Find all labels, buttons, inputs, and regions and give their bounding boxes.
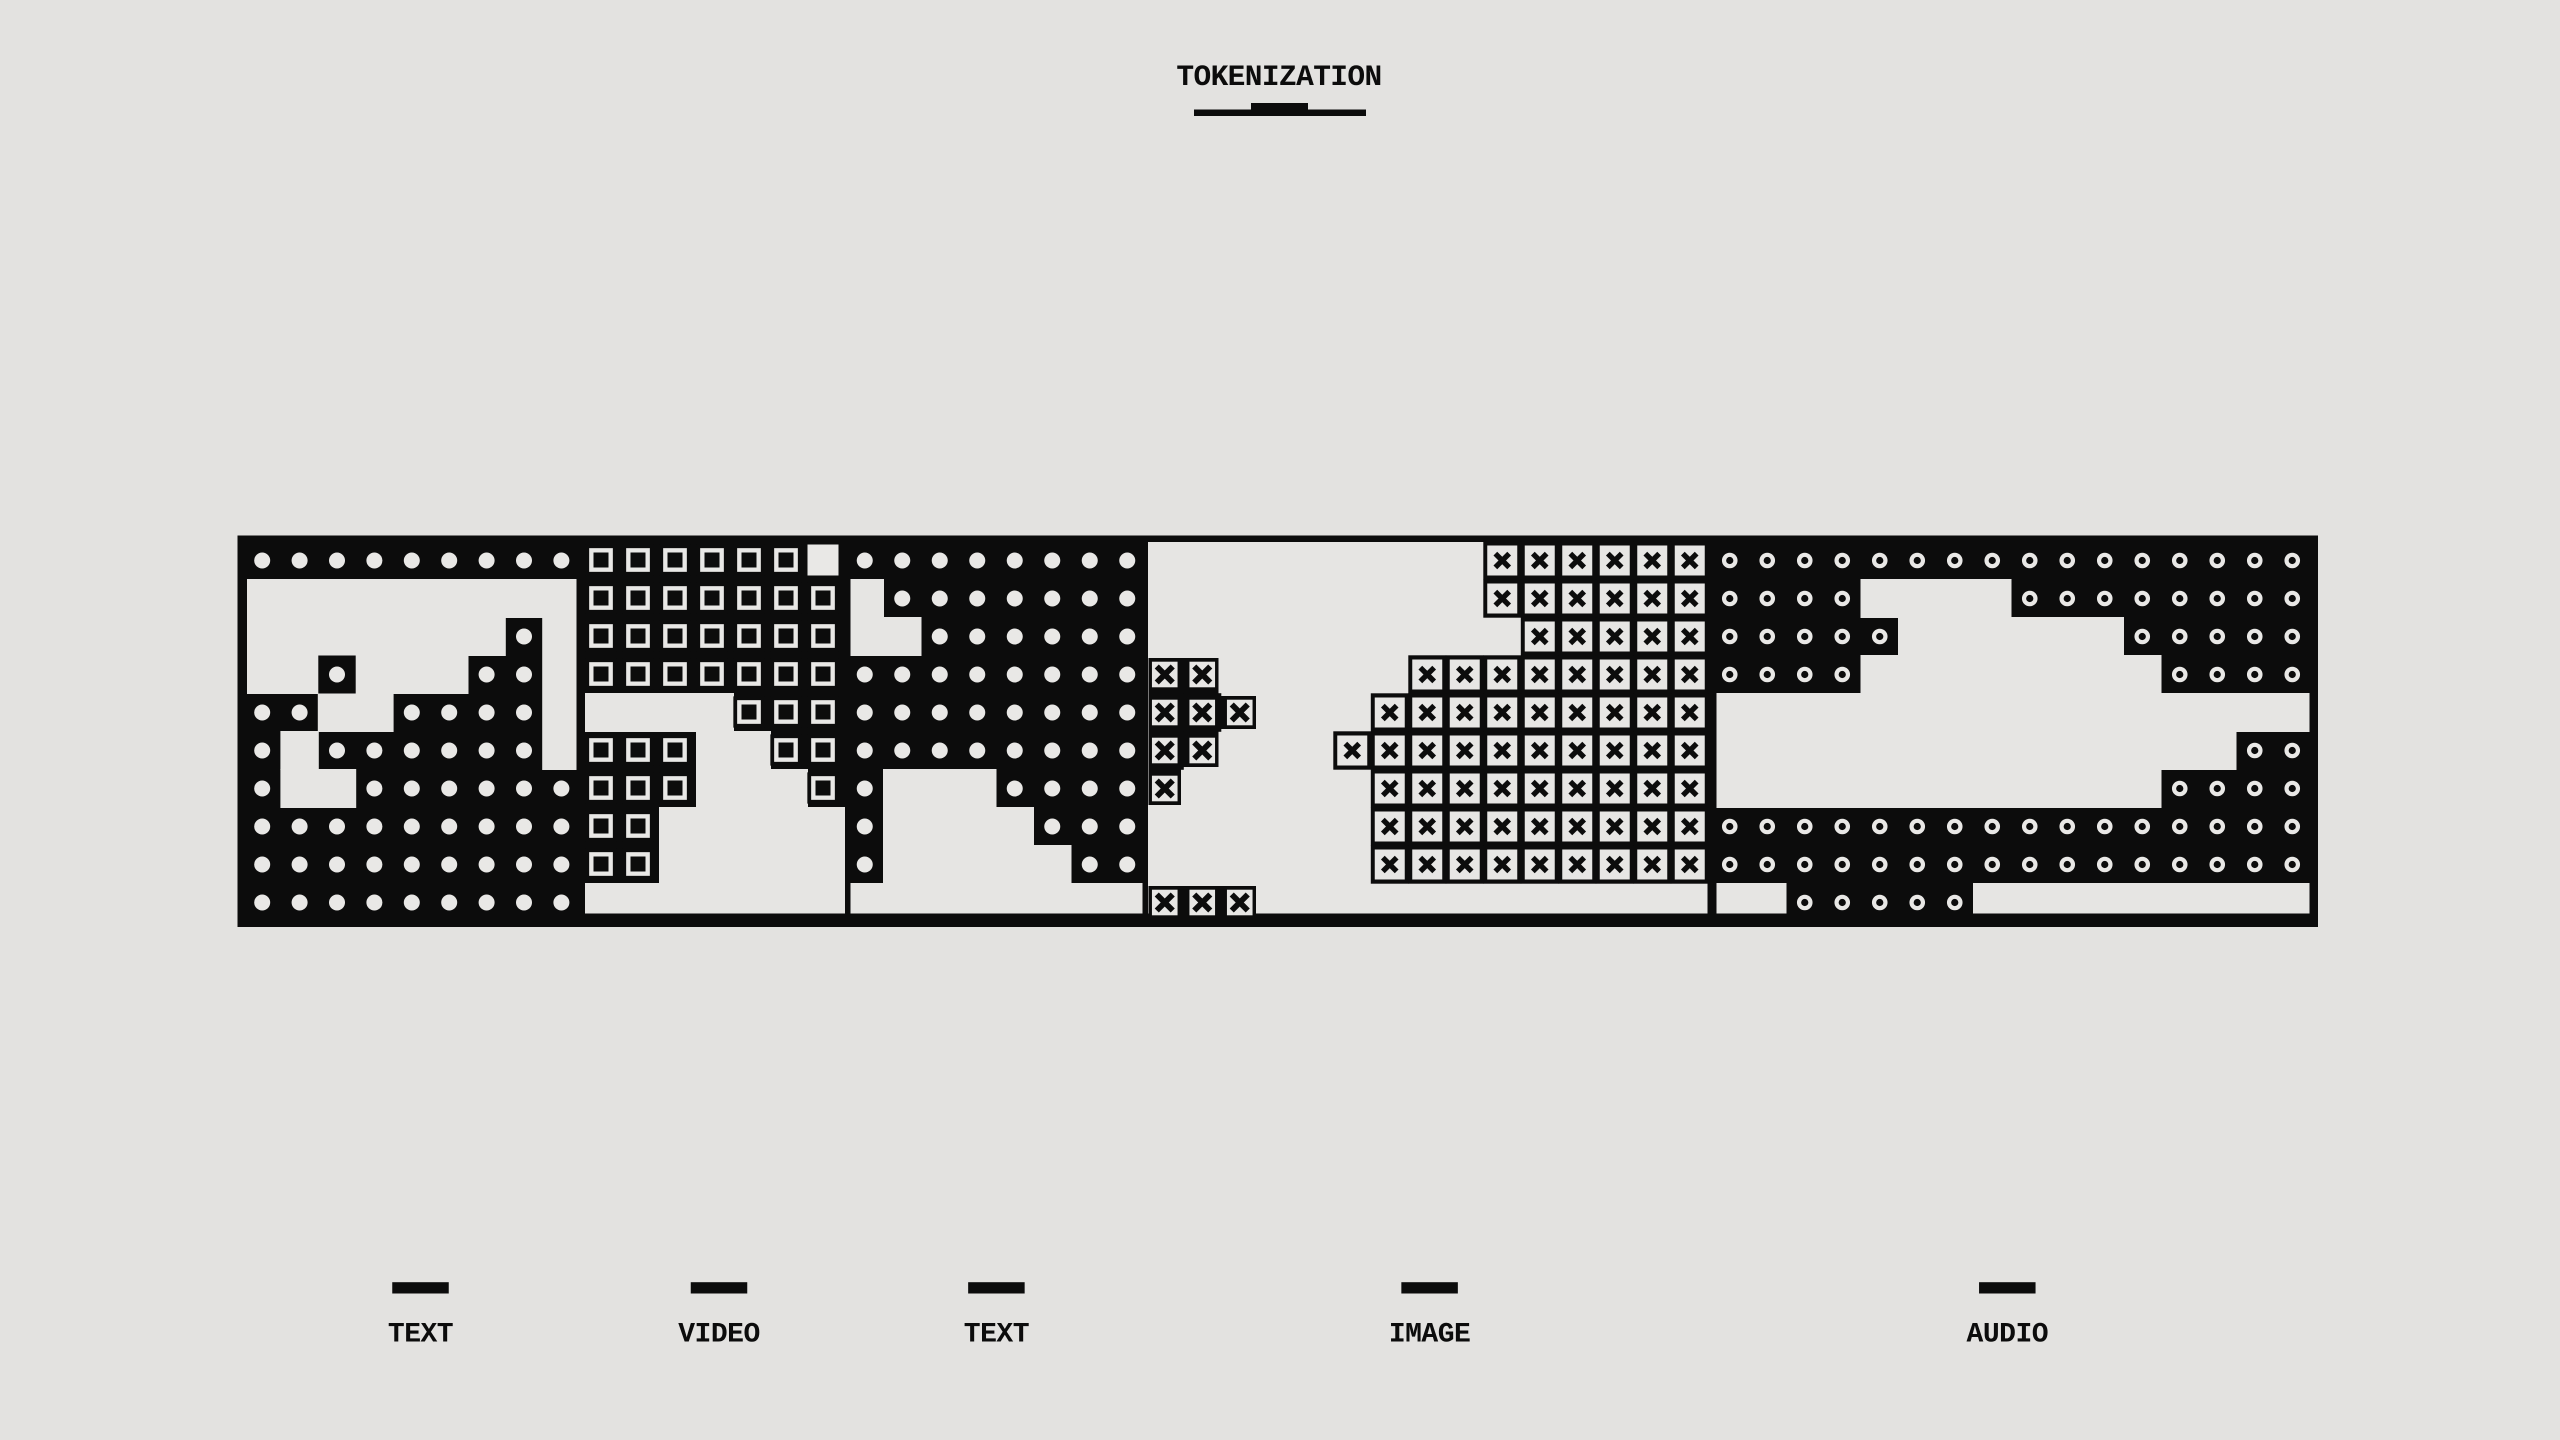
svg-text:TEXT: TEXT (964, 1320, 1029, 1351)
svg-text:AUDIO: AUDIO (1967, 1320, 2049, 1351)
svg-text:IMAGE: IMAGE (1389, 1320, 1471, 1351)
svg-text:TOKENIZATION: TOKENIZATION (1176, 60, 1381, 94)
svg-text:VIDEO: VIDEO (678, 1320, 760, 1351)
svg-text:TEXT: TEXT (388, 1320, 453, 1351)
